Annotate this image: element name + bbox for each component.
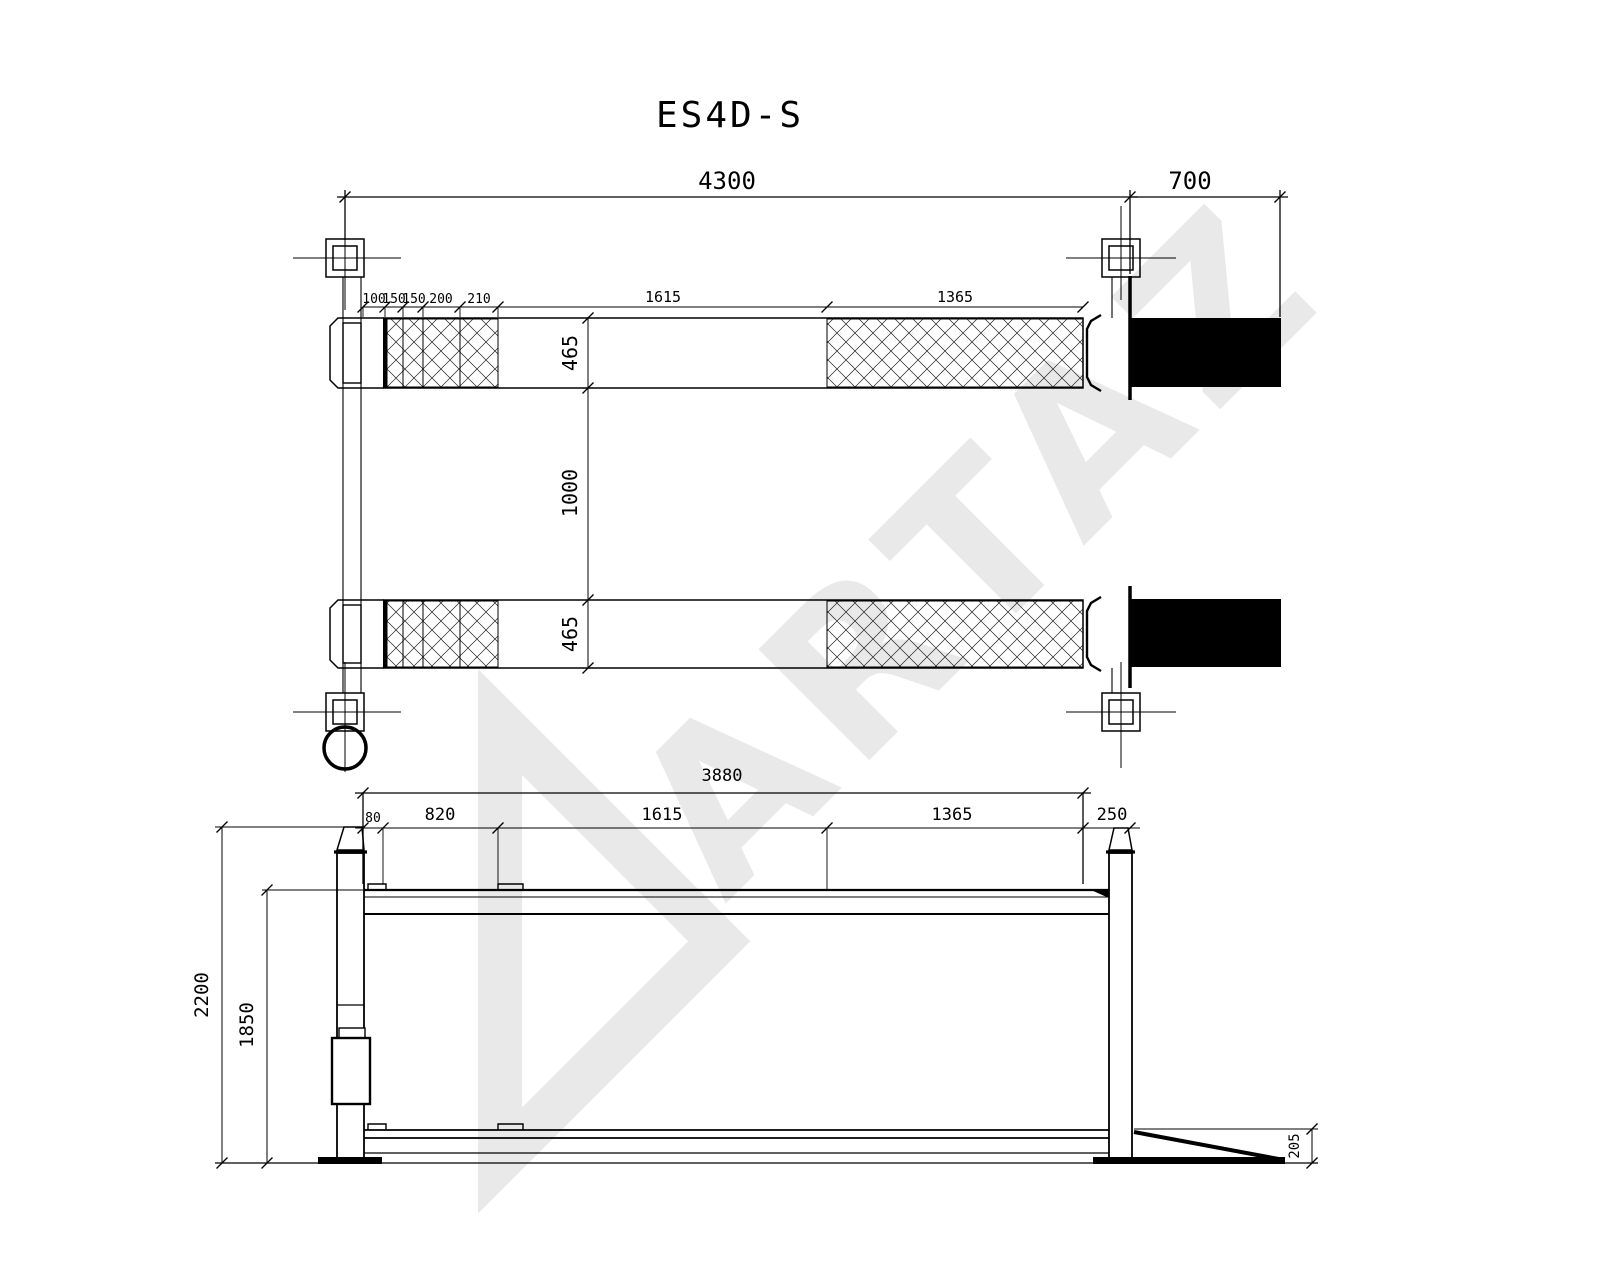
dim-ramp-length-label: 700 <box>1168 167 1211 195</box>
dim-track-widths: 465 1000 465 <box>558 313 594 674</box>
dim-seg-1365-label: 1365 <box>937 288 973 306</box>
dim-height-overall-label: 2200 <box>191 972 213 1018</box>
column-right <box>1106 828 1135 1158</box>
dim-segment-row: 100 150 150 200 210 1615 1365 <box>358 288 1089 317</box>
watermark-text: ARTAZ <box>584 152 1373 941</box>
column-left <box>318 827 382 1164</box>
dim-heights: 2200 1850 <box>191 822 344 1169</box>
tread-plate-lower-left <box>387 601 498 667</box>
dim-overall-length: 4300 <box>337 167 1138 274</box>
dim-track-width-bottom-label: 465 <box>558 616 582 652</box>
drive-on-ramp-lower <box>1130 599 1281 667</box>
tread-plate-upper-left <box>387 319 498 387</box>
dim-side-820-label: 820 <box>425 805 456 825</box>
power-unit-box <box>332 1038 370 1104</box>
base-plate-right <box>1093 1157 1285 1164</box>
dim-side-1615-label: 1615 <box>642 805 683 825</box>
dim-seg-210-label: 210 <box>467 292 490 307</box>
drawing-canvas: ARTAZ ES4D-S 4300 700 <box>0 0 1600 1280</box>
drawing-title: ES4D-S <box>656 95 804 136</box>
dim-side-1365-label: 1365 <box>932 805 973 825</box>
ramp-hinge-lower <box>1087 597 1101 671</box>
dim-track-gap-label: 1000 <box>558 469 582 517</box>
dim-ramp-height-label: 205 <box>1287 1133 1303 1158</box>
dim-ledge-250-label: 250 <box>1097 805 1128 825</box>
dim-seg-1615-label: 1615 <box>645 288 681 306</box>
dim-height-platform-label: 1850 <box>236 1002 258 1048</box>
dim-track-width-top-label: 465 <box>558 335 582 371</box>
post-bottom-right <box>1066 662 1176 768</box>
runway-upper-end-plate <box>343 323 361 383</box>
dim-side-80-label: 80 <box>365 811 381 826</box>
drawing-page: ARTAZ ES4D-S 4300 700 <box>0 0 1600 1280</box>
dim-seg-150b-label: 150 <box>402 292 425 307</box>
drive-on-wedge <box>1134 1132 1284 1160</box>
post-bottom-left <box>293 662 401 772</box>
dim-overall-length-label: 4300 <box>698 167 756 195</box>
dim-platform-total-label: 3880 <box>702 766 743 786</box>
drive-on-ramp-upper <box>1130 318 1281 387</box>
dim-seg-200-label: 200 <box>429 292 452 307</box>
tread-plate-upper-right <box>827 319 1083 387</box>
runway-lower-end-plate <box>343 605 361 663</box>
platform-lowered <box>364 1124 1109 1153</box>
tread-plate-lower-right <box>827 601 1083 667</box>
